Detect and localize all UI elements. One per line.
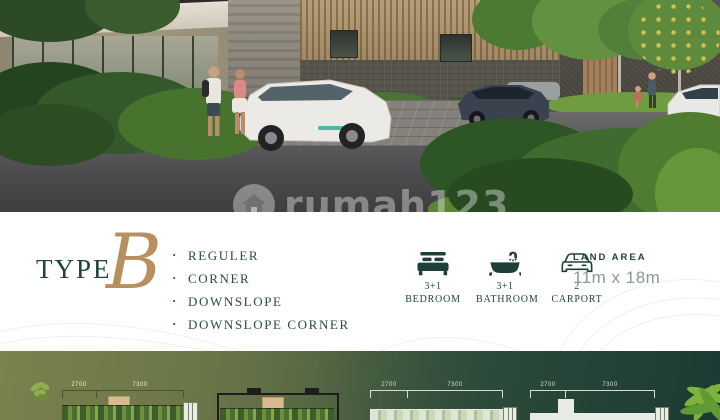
plan-slab bbox=[530, 413, 655, 420]
house-icon bbox=[232, 183, 276, 212]
plan-stair bbox=[655, 407, 669, 420]
plant-sprig-icon bbox=[28, 378, 52, 402]
bathtub-icon bbox=[476, 250, 534, 276]
variant-list: REGULER CORNER DOWNSLOPE DOWNSLOPE CORNE… bbox=[172, 248, 350, 340]
plan-stair bbox=[503, 407, 517, 420]
land-area-block: LAND AREA 11m x 18m bbox=[573, 252, 660, 288]
floor-plan-strip: 2700 7300 2700 7300 bbox=[0, 351, 720, 420]
variant-item: DOWNSLOPE bbox=[172, 294, 350, 310]
floor-plan: 2700 7300 bbox=[62, 351, 184, 420]
person-man bbox=[202, 67, 221, 137]
land-area-value: 11m x 18m bbox=[573, 268, 660, 288]
land-area-label: LAND AREA bbox=[573, 252, 660, 263]
person-adult bbox=[648, 72, 656, 108]
dim-label: 7300 bbox=[447, 382, 462, 388]
hero-render-photo: rumah123 bbox=[0, 0, 720, 212]
dim-label: 2700 bbox=[71, 382, 86, 388]
dim-label: 7300 bbox=[602, 382, 617, 388]
palm-leaves bbox=[674, 373, 720, 420]
type-letter: B bbox=[106, 224, 162, 300]
dim-label: 2700 bbox=[540, 382, 555, 388]
spec-band: TYPE B REGULER CORNER DOWNSLOPE DOWNSLOP… bbox=[0, 212, 720, 351]
plan-step bbox=[558, 399, 574, 413]
feature-label: CARPORT bbox=[548, 294, 606, 305]
type-logo: TYPE B bbox=[36, 240, 166, 320]
watermark: rumah123 bbox=[232, 182, 509, 212]
plan-garden bbox=[62, 405, 184, 420]
plan-stair bbox=[183, 402, 198, 420]
variant-item: CORNER bbox=[172, 271, 350, 287]
feature-value: 3+1 bbox=[404, 281, 462, 292]
plan-garden bbox=[370, 409, 505, 420]
type-word: TYPE bbox=[36, 254, 112, 285]
floor-plan bbox=[217, 351, 339, 420]
feature-label: BEDROOM bbox=[404, 294, 462, 305]
brochure-page: rumah123 TYPE B REGULER CORNER DOWNSLOPE… bbox=[0, 0, 720, 420]
watermark-text: rumah123 bbox=[284, 183, 509, 212]
variant-item: DOWNSLOPE CORNER bbox=[172, 317, 350, 333]
floor-plan: 2700 7300 bbox=[530, 351, 655, 420]
plan-garden bbox=[220, 408, 334, 420]
white-suv bbox=[240, 80, 391, 151]
feature-bathroom: 3+1 BATHROOM bbox=[476, 250, 534, 305]
variant-item: REGULER bbox=[172, 248, 350, 264]
floor-plan: 2700 7300 bbox=[370, 351, 503, 420]
feature-bedroom: 3+1 BEDROOM bbox=[404, 250, 462, 305]
bed-icon bbox=[404, 250, 462, 276]
person-child bbox=[635, 86, 642, 108]
feature-value: 3+1 bbox=[476, 281, 534, 292]
dim-label: 7300 bbox=[132, 382, 147, 388]
feature-label: BATHROOM bbox=[476, 294, 534, 305]
dim-label: 2700 bbox=[381, 382, 396, 388]
